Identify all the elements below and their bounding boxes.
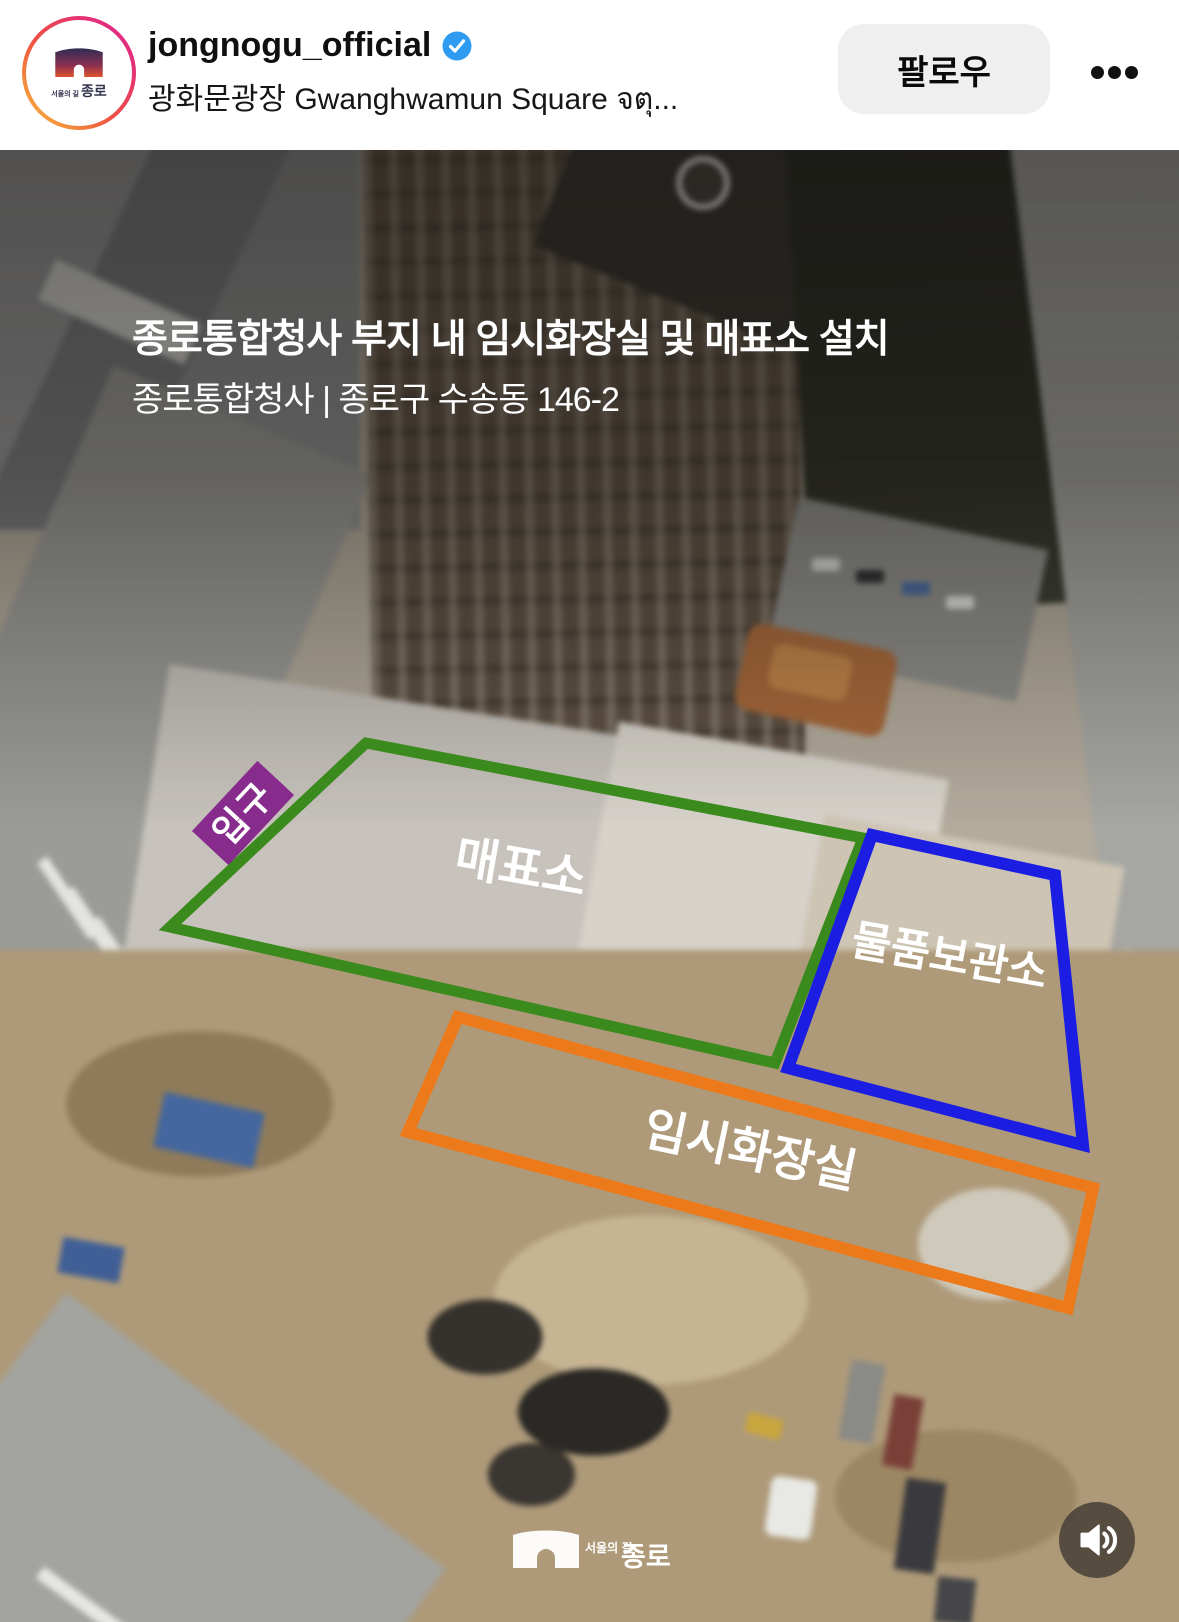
post-media[interactable]: 종로통합청사 부지 내 임시화장실 및 매표소 설치 종로통합청사 | 종로구 …: [0, 150, 1179, 1622]
jongno-watermark: 서울의 길 종로: [513, 1531, 671, 1573]
sound-toggle-button[interactable]: [1059, 1502, 1135, 1578]
verified-icon: [441, 30, 473, 62]
username-row: jongnogu_official: [148, 26, 473, 65]
avatar-logo-text: 서울의 길 종로: [51, 81, 106, 101]
watermark-gate-icon: [513, 1531, 579, 1569]
avatar: 서울의 길 종로: [29, 23, 129, 123]
label-ticket-office: 매표소: [451, 831, 591, 906]
more-options-icon[interactable]: [1087, 62, 1142, 83]
post-header: 서울의 길 종로 jongnogu_official 광화문광장 Gwanghw…: [0, 0, 1179, 150]
entrance-tag: 입구: [192, 761, 294, 865]
username[interactable]: jongnogu_official: [148, 26, 431, 65]
avatar-logo-small: 서울의 길: [51, 89, 79, 99]
avatar-logo-large: 종로: [81, 81, 107, 101]
instagram-post-screen: 서울의 길 종로 jongnogu_official 광화문광장 Gwanghw…: [0, 0, 1179, 1622]
follow-button[interactable]: 팔로우: [838, 24, 1050, 114]
site-annotations: 입구 매표소 물품보관소 임시화장실 서울의 길 종로: [0, 150, 1179, 1622]
watermark-large-text: 종로: [621, 1542, 671, 1572]
label-storage: 물품보관소: [848, 916, 1051, 998]
jongno-gate-logo-icon: [53, 46, 105, 79]
speaker-on-icon: [1075, 1518, 1119, 1562]
avatar-story-ring[interactable]: 서울의 길 종로: [22, 16, 136, 130]
location-link[interactable]: 광화문광장 Gwanghwamun Square จตุ...: [148, 74, 678, 123]
